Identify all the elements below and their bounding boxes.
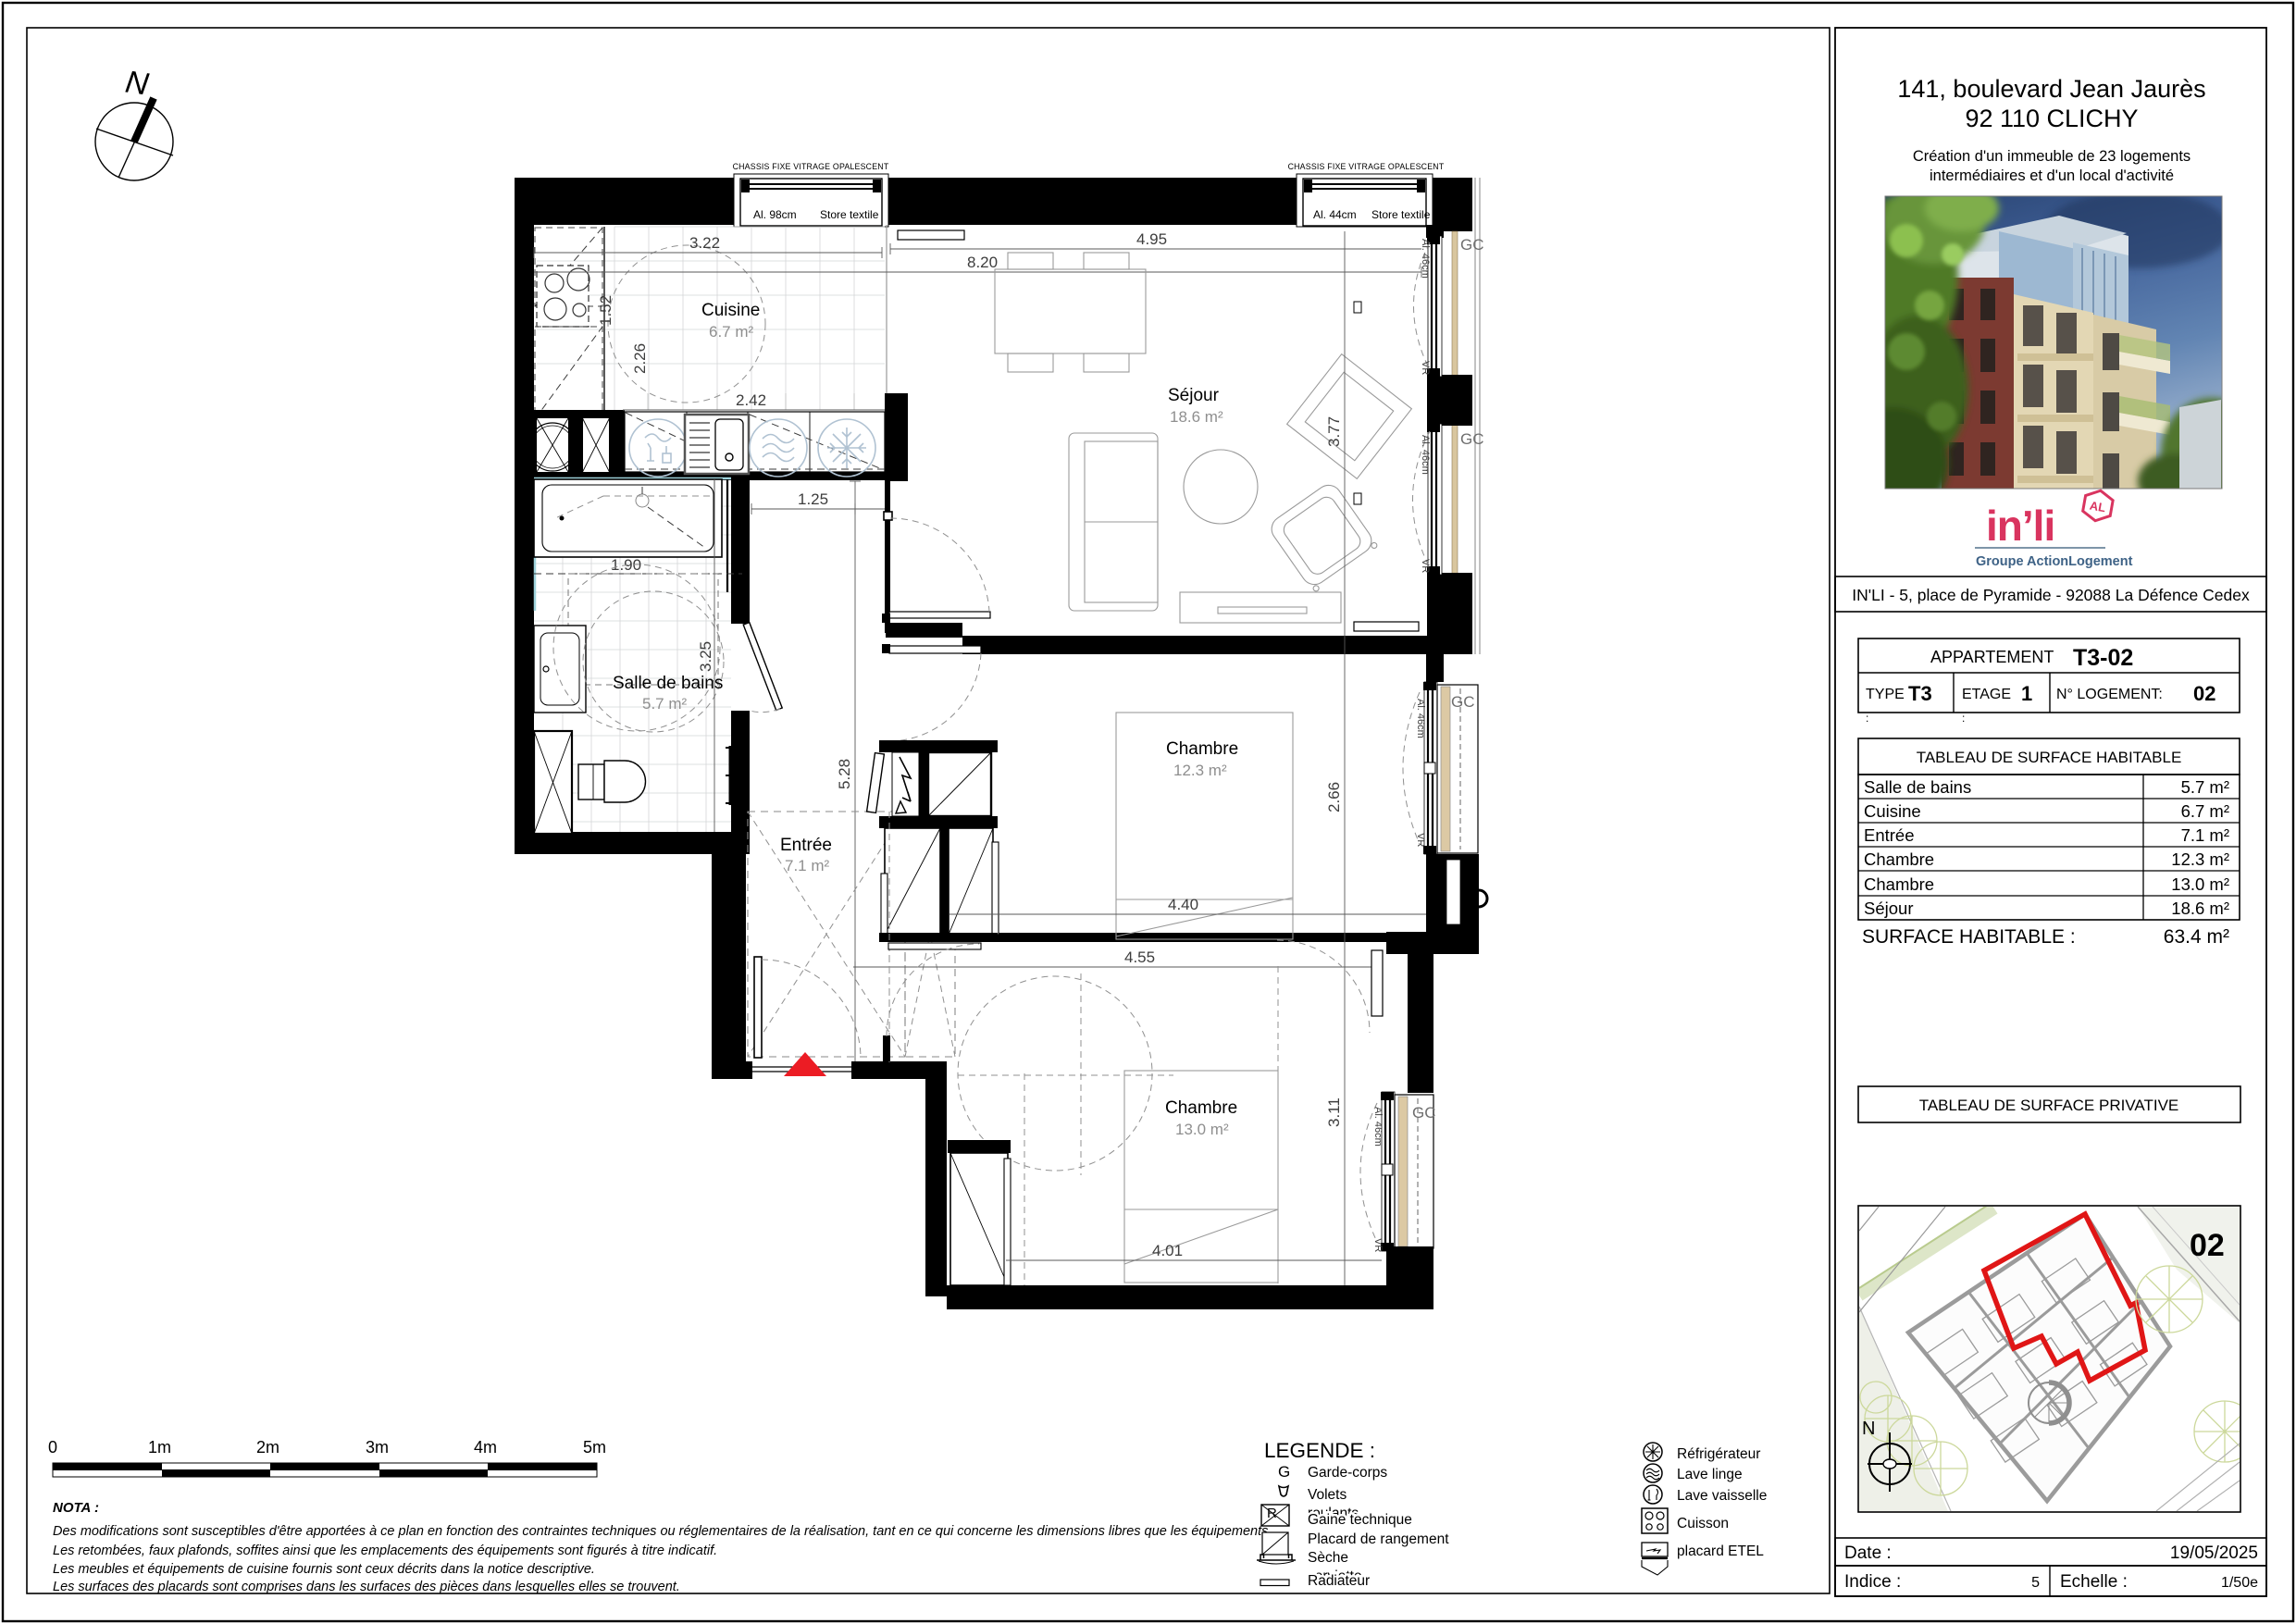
svg-text:intermédiaires et d'un local d: intermédiaires et d'un local d'activité (1930, 167, 2174, 184)
svg-text:Les surfaces des placards sont: Les surfaces des placards sont comprises… (53, 1580, 680, 1594)
svg-text:13.0 m²: 13.0 m² (2171, 874, 2229, 894)
svg-text:AL: AL (2089, 499, 2107, 515)
svg-text:T3-02: T3-02 (2073, 645, 2133, 671)
svg-text:19/05/2025: 19/05/2025 (2170, 1543, 2258, 1563)
svg-text:02: 02 (2190, 1228, 2225, 1263)
svg-text:IN'LI - 5, place de Pyramide -: IN'LI - 5, place de Pyramide - 92088 La … (1852, 586, 2250, 604)
svg-text:Chambre: Chambre (1864, 874, 1934, 894)
svg-text:Cuisine: Cuisine (1864, 801, 1921, 821)
svg-text:Al. 46cm: Al. 46cm (1372, 1107, 1384, 1147)
svg-text:Echelle :: Echelle : (2060, 1572, 2128, 1592)
svg-text:Al. 46cm: Al. 46cm (1420, 435, 1431, 475)
svg-text:GC: GC (1451, 693, 1475, 711)
svg-text:Lave vaisselle: Lave vaisselle (1677, 1488, 1767, 1504)
svg-text:141, boulevard Jean Jaurès: 141, boulevard Jean Jaurès (1897, 75, 2205, 103)
svg-text:6.7 m²: 6.7 m² (2181, 801, 2229, 821)
svg-text:1m: 1m (148, 1438, 171, 1457)
svg-text:2.26: 2.26 (631, 343, 649, 374)
svg-text:2m: 2m (256, 1438, 279, 1457)
svg-text:18.6 m²: 18.6 m² (1170, 408, 1223, 426)
svg-text:Indice :: Indice : (1844, 1572, 1901, 1592)
svg-text:12.3 m²: 12.3 m² (2171, 849, 2229, 869)
svg-text:5.7 m²: 5.7 m² (642, 695, 688, 713)
svg-text:GC: GC (1460, 430, 1484, 448)
svg-text:Date :: Date : (1844, 1543, 1892, 1563)
svg-text:Réfrigérateur: Réfrigérateur (1677, 1446, 1760, 1462)
svg-text:Entrée: Entrée (780, 836, 832, 855)
svg-text:3.25: 3.25 (697, 641, 714, 672)
svg-text:TYPE: TYPE (1866, 687, 1905, 702)
svg-text:2.42: 2.42 (736, 391, 766, 409)
svg-text:Gaine technique: Gaine technique (1308, 1512, 1412, 1528)
svg-text:18.6 m²: 18.6 m² (2171, 899, 2229, 918)
svg-text:SURFACE HABITABLE :: SURFACE HABITABLE : (1862, 926, 2076, 948)
svg-text:Al. 98cm: Al. 98cm (753, 208, 797, 221)
svg-text:7.1 m²: 7.1 m² (785, 857, 830, 874)
svg-text:12.3 m²: 12.3 m² (1173, 762, 1227, 779)
svg-text:3.22: 3.22 (689, 234, 720, 252)
svg-text:Lave linge: Lave linge (1677, 1467, 1743, 1482)
svg-text:in’li: in’li (1986, 502, 2054, 550)
svg-text:3m: 3m (366, 1438, 389, 1457)
svg-text:APPARTEMENT: APPARTEMENT (1930, 648, 2054, 666)
svg-text:Chambre: Chambre (1165, 1098, 1237, 1118)
svg-text:Store textile: Store textile (1371, 208, 1431, 221)
svg-text:GC: GC (1460, 236, 1484, 254)
svg-text:4.01: 4.01 (1152, 1242, 1183, 1259)
svg-text:Al. 44cm: Al. 44cm (1313, 208, 1357, 221)
svg-text:Garde-corps: Garde-corps (1308, 1465, 1387, 1481)
svg-text:8.20: 8.20 (967, 254, 998, 271)
svg-text:Chambre: Chambre (1166, 739, 1238, 759)
svg-text:TABLEAU DE SURFACE PRIVATIVE: TABLEAU DE SURFACE PRIVATIVE (1919, 1097, 2179, 1114)
svg-text:02: 02 (2193, 682, 2215, 705)
svg-text:0: 0 (48, 1438, 57, 1457)
svg-text:R: R (1267, 1506, 1277, 1521)
svg-text:Des modifications sont suscept: Des modifications sont susceptibles d'êt… (53, 1524, 1272, 1539)
svg-text:Sèche: Sèche (1308, 1550, 1348, 1566)
svg-text:Les meubles et équipements de: Les meubles et équipements de cuisine fo… (53, 1562, 595, 1577)
svg-text:92 110 CLICHY: 92 110 CLICHY (1965, 105, 2138, 132)
svg-text:Placard de rangement: Placard de rangement (1308, 1531, 1449, 1547)
svg-text:ETAGE: ETAGE (1962, 687, 2011, 702)
svg-text:3.77: 3.77 (1325, 416, 1343, 447)
svg-text:Les retombées, faux plafonds,: Les retombées, faux plafonds, soffites a… (53, 1543, 717, 1558)
svg-text:4.95: 4.95 (1136, 230, 1167, 248)
svg-text:CHASSIS FIXE VITRAGE OPALESCEN: CHASSIS FIXE VITRAGE OPALESCENT (1288, 162, 1445, 171)
svg-text:Cuisine: Cuisine (701, 301, 760, 320)
svg-text::: : (1962, 712, 1965, 725)
svg-text:1/50e: 1/50e (2221, 1575, 2258, 1591)
svg-text:CHASSIS FIXE VITRAGE OPALESCEN: CHASSIS FIXE VITRAGE OPALESCENT (733, 162, 889, 171)
svg-text:7.1 m²: 7.1 m² (2181, 825, 2229, 845)
svg-text:Store textile: Store textile (820, 208, 879, 221)
svg-text:4.40: 4.40 (1168, 896, 1198, 913)
svg-text:Entrée: Entrée (1864, 825, 1915, 845)
svg-text:63.4 m²: 63.4 m² (2164, 926, 2229, 948)
svg-text:Création d'un immeuble de 23 l: Création d'un immeuble de 23 logements (1913, 148, 2191, 165)
svg-text:6.7 m²: 6.7 m² (709, 323, 754, 341)
svg-text:N° LOGEMENT:: N° LOGEMENT: (2056, 687, 2163, 702)
svg-text:placard ETEL: placard ETEL (1677, 1543, 1764, 1559)
svg-text:1.25: 1.25 (798, 490, 828, 508)
svg-text:T3: T3 (1908, 682, 1932, 705)
svg-text:4m: 4m (474, 1438, 497, 1457)
svg-text:Radiateur: Radiateur (1308, 1573, 1370, 1589)
svg-text:N: N (1862, 1419, 1875, 1439)
svg-text:VR: VR (1372, 1238, 1384, 1252)
svg-text:Cuisson: Cuisson (1677, 1516, 1729, 1531)
svg-text:VR: VR (1420, 559, 1431, 573)
svg-text:2.66: 2.66 (1325, 782, 1343, 812)
svg-text:VR: VR (1420, 361, 1431, 375)
svg-text:G: G (1278, 1463, 1290, 1481)
svg-text:LEGENDE :: LEGENDE : (1264, 1439, 1375, 1462)
svg-text:Salle de bains: Salle de bains (1864, 777, 1971, 797)
svg-text:TABLEAU DE SURFACE HABITABLE: TABLEAU DE SURFACE HABITABLE (1917, 749, 2182, 766)
svg-text:4.55: 4.55 (1124, 948, 1155, 966)
svg-text:13.0 m²: 13.0 m² (1175, 1121, 1229, 1138)
svg-text::: : (1866, 712, 1868, 725)
svg-text:5.28: 5.28 (836, 759, 853, 789)
svg-text:5: 5 (2031, 1575, 2040, 1591)
svg-text:1: 1 (2021, 682, 2032, 705)
svg-text:Salle de bains: Salle de bains (613, 674, 723, 693)
svg-text:Séjour: Séjour (1864, 899, 1913, 918)
svg-text:Volets: Volets (1308, 1487, 1347, 1503)
svg-text:1.52: 1.52 (597, 295, 614, 326)
svg-text:Chambre: Chambre (1864, 849, 1934, 869)
svg-text:5m: 5m (583, 1438, 606, 1457)
svg-text:VR: VR (1415, 833, 1426, 847)
svg-text:GC: GC (1412, 1104, 1436, 1122)
svg-text:Groupe ActionLogement: Groupe ActionLogement (1976, 554, 2133, 569)
svg-text:NOTA :: NOTA : (53, 1500, 99, 1516)
svg-text:5.7 m²: 5.7 m² (2181, 777, 2229, 797)
svg-text:3.11: 3.11 (1325, 1097, 1343, 1127)
svg-text:Séjour: Séjour (1168, 386, 1220, 405)
